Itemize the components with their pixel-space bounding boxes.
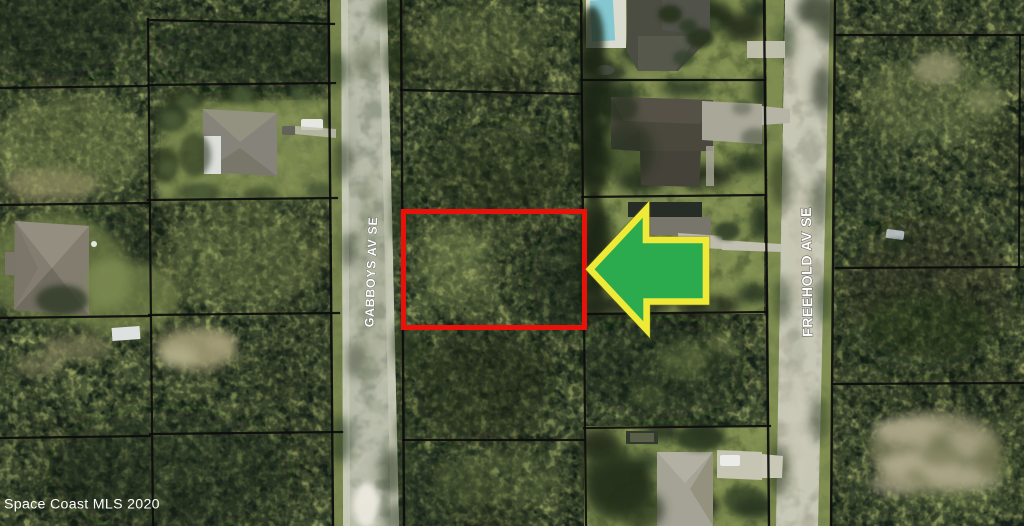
svg-text:FREEHOLD AV SE: FREEHOLD AV SE — [799, 207, 817, 337]
svg-text:Space Coast MLS 2020: Space Coast MLS 2020 — [4, 497, 160, 513]
